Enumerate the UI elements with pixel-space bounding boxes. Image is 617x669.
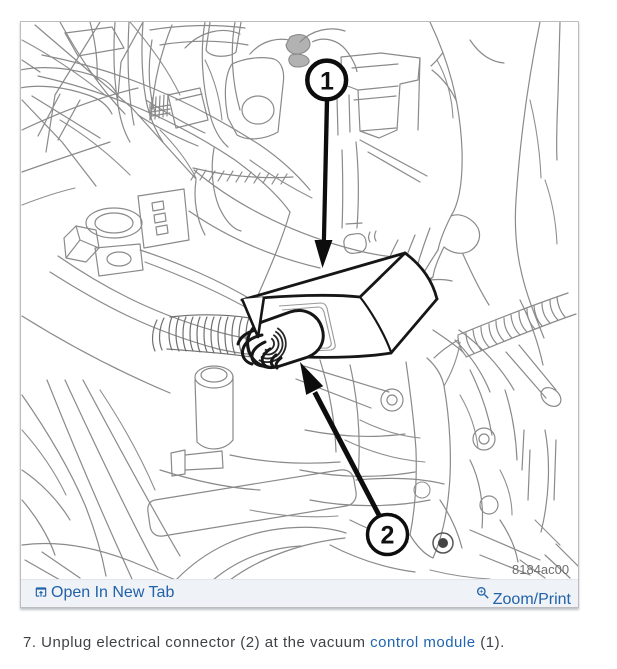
svg-text:1: 1 bbox=[320, 68, 334, 96]
svg-text:8184ac00: 8184ac00 bbox=[512, 562, 569, 577]
svg-text:2: 2 bbox=[381, 522, 395, 550]
